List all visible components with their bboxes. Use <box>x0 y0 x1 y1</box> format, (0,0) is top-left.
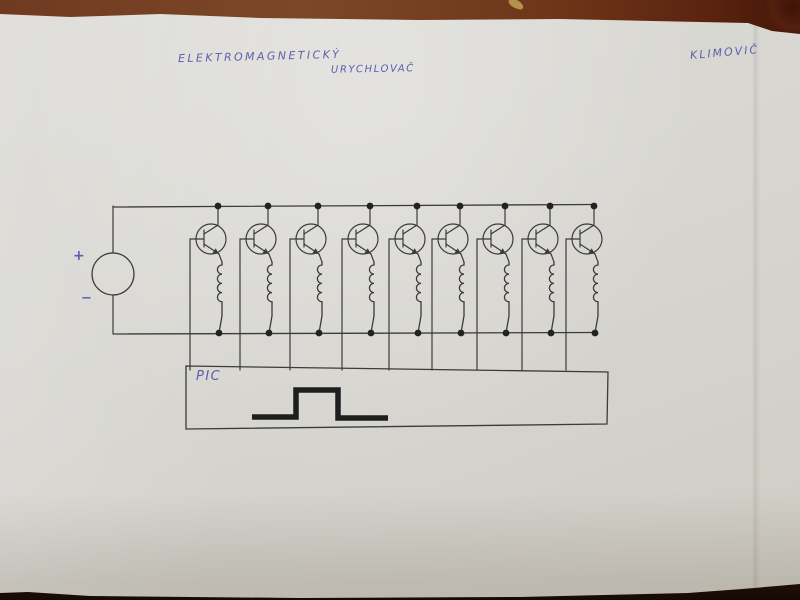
transistor-stage-7 <box>477 203 513 370</box>
circuit-schematic <box>0 0 800 600</box>
photo-of-hand-drawn-schematic: { "texts": { "title_line1": "ELEKTROMAGN… <box>0 0 800 600</box>
pulse-waveform <box>252 390 388 418</box>
supply-minus-label: − <box>81 291 92 306</box>
schematic-title-line2: URYCHLOVAČ <box>331 63 415 75</box>
transistor-stage-5 <box>389 203 425 370</box>
transistor-stage-1 <box>190 203 226 370</box>
pic-controller-label: PIC <box>196 369 221 384</box>
schematic-lines <box>92 205 596 335</box>
pic-controller-box <box>186 366 608 429</box>
transistor-stage-6 <box>432 203 468 370</box>
transistor-stage-4 <box>342 203 378 370</box>
supply-plus-label: + <box>73 248 85 264</box>
transistor-stage-2 <box>240 203 276 370</box>
transistor-stage-9 <box>566 203 602 370</box>
transistor-stage-3 <box>290 203 326 370</box>
transistor-stage-8 <box>522 203 558 370</box>
